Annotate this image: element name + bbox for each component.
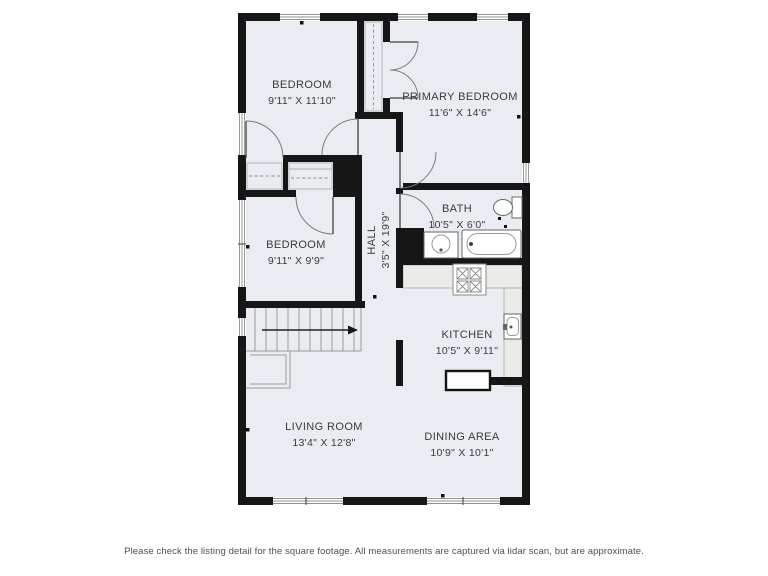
wall (333, 162, 357, 190)
room-label-primary-bedroom: PRIMARY BEDROOM (402, 91, 518, 103)
wall (357, 21, 364, 114)
wall (396, 119, 403, 152)
wall (490, 377, 522, 385)
window (427, 497, 500, 505)
window (238, 113, 246, 155)
wall (383, 21, 390, 42)
wall (396, 188, 403, 194)
room-dims-primary-bedroom: 11'6" X 14'6" (429, 107, 491, 119)
wall (396, 340, 403, 386)
room-label-living-room: LIVING ROOM (285, 421, 363, 433)
room-label-bedroom-top: BEDROOM (272, 79, 332, 91)
floorplan-drawing: BEDROOM 9'11" X 11'10" PRIMARY BEDROOM 1… (0, 0, 768, 576)
wall (283, 162, 288, 190)
room-label-kitchen: KITCHEN (441, 329, 492, 341)
wall (383, 98, 390, 112)
stove-icon (453, 264, 486, 295)
bathtub-icon (462, 230, 521, 258)
disclaimer-text: Please check the listing detail for the … (0, 546, 768, 557)
wall (283, 155, 357, 162)
wall (522, 13, 530, 505)
floorplan-page: BEDROOM 9'11" X 11'10" PRIMARY BEDROOM 1… (0, 0, 768, 576)
wall (403, 183, 522, 190)
window (273, 497, 343, 505)
wall (355, 112, 403, 119)
window (477, 13, 508, 21)
wall (246, 190, 296, 197)
window (522, 163, 530, 183)
window (398, 13, 428, 21)
wall (396, 228, 424, 258)
room-dims-bedroom-top: 9'11" X 11'10" (268, 95, 336, 107)
wall (238, 301, 365, 308)
peninsula-counter (446, 371, 490, 390)
room-dims-kitchen: 10'5" X 9'11" (436, 345, 498, 357)
room-label-dining-area: DINING AREA (424, 431, 500, 443)
room-dims-bedroom-mid: 9'11" X 9'9" (268, 255, 324, 267)
wall (333, 190, 357, 197)
room-dims-hall: 3'5" X 19'9" (380, 211, 392, 268)
window (280, 13, 320, 21)
vanity-sink-icon (424, 232, 458, 258)
room-dims-living-room: 13'4" X 12'8" (292, 437, 355, 449)
room-label-bedroom-mid: BEDROOM (266, 239, 326, 251)
window (238, 318, 246, 336)
room-dims-bath: 10'5" X 6'0" (428, 219, 485, 231)
wall (396, 265, 403, 288)
room-dims-dining-area: 10'9" X 10'1" (430, 447, 493, 459)
window (238, 200, 246, 287)
kitchen-sink-icon (503, 314, 521, 339)
room-label-bath: BATH (442, 203, 472, 215)
room-label-hall: HALL (366, 225, 378, 254)
